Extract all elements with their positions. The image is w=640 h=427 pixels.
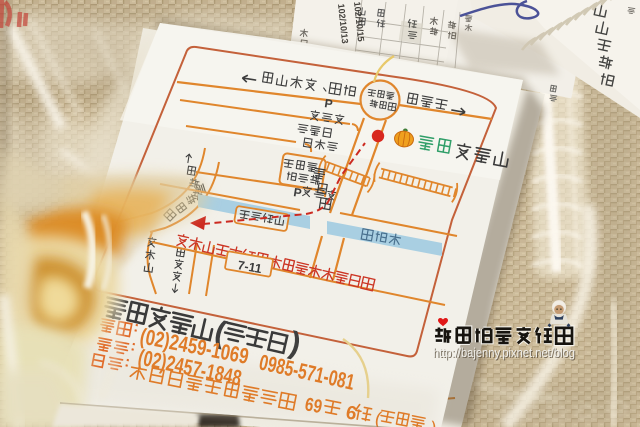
svg-text:http://bajenny.pixnet.net/blog: http://bajenny.pixnet.net/blog	[433, 346, 575, 360]
